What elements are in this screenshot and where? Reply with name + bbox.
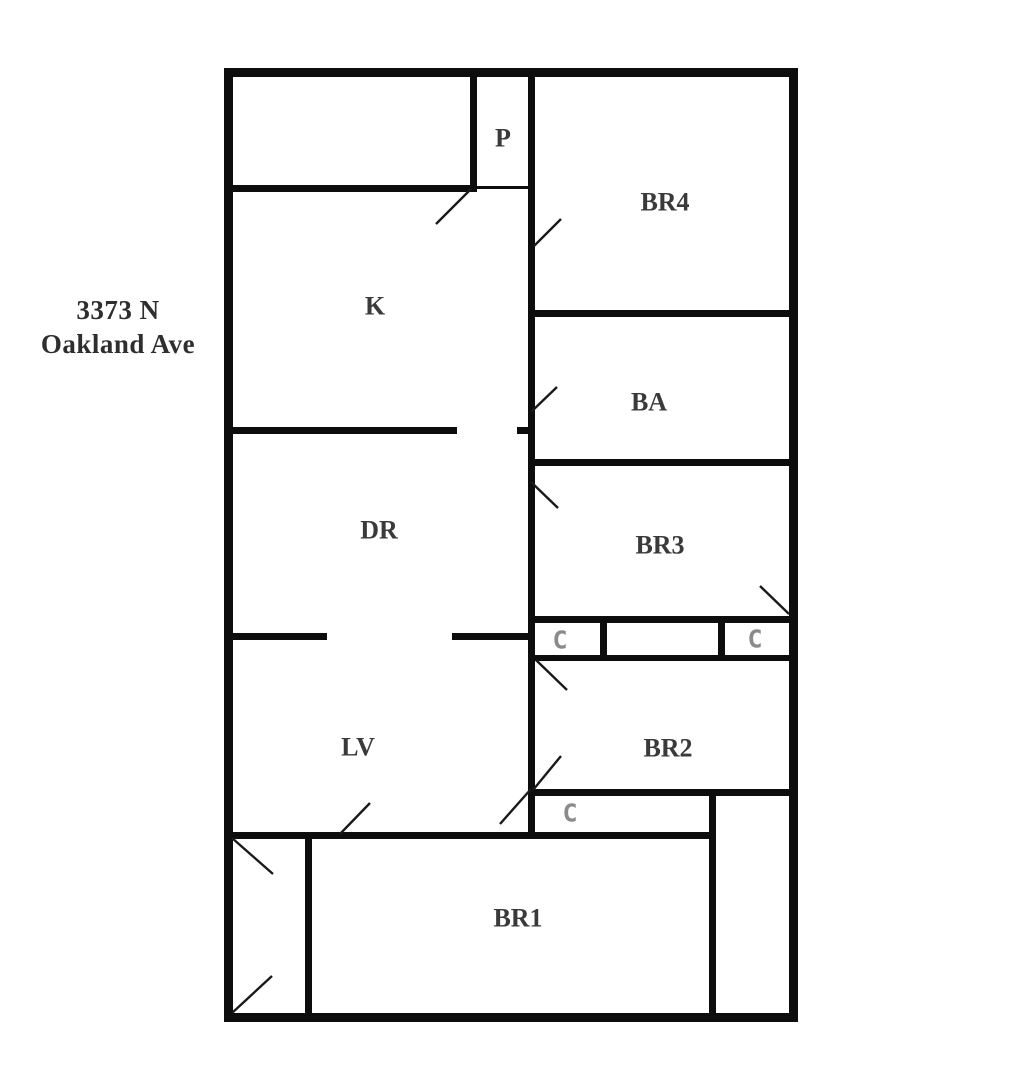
door-swing-line-6 (536, 660, 567, 690)
floorplan-diagram: PBR4KBADRBR3CCLVBR2CBR1 (0, 0, 1013, 1080)
door-swing-line-1 (436, 189, 471, 224)
door-swing-line-7 (533, 756, 561, 790)
door-swing-line-4 (531, 482, 558, 508)
closet-divider-2 (718, 623, 725, 655)
outer-wall-left (224, 68, 233, 1022)
door-swing-line-2 (534, 219, 561, 246)
outer-wall-bottom (224, 1013, 798, 1022)
vestibule-divider (305, 839, 312, 1013)
floorplan-page: 3373 N Oakland Ave PBR4KBADRBR3CCLVBR2CB… (0, 0, 1013, 1080)
room-label-lv: LV (341, 733, 375, 762)
door-swing-line-10 (232, 838, 273, 874)
pantry-left-wall (470, 77, 477, 192)
dr-lv-wall-left (233, 633, 327, 640)
br3-closetrow-wall (535, 616, 789, 623)
lv-br1-wall (233, 832, 716, 839)
topleft-room-bottom-wall (233, 185, 477, 192)
door-swing-line-11 (232, 976, 272, 1013)
dr-lv-wall-right (452, 633, 528, 640)
outer-wall-top (224, 68, 798, 77)
room-label-br4: BR4 (640, 188, 689, 217)
door-swing-line-9 (340, 803, 370, 834)
central-wall (528, 77, 535, 839)
ba-br3-wall (535, 459, 789, 466)
room-label-br3: BR3 (635, 531, 684, 560)
br2-bottom-wall (535, 789, 789, 796)
room-label-k: K (365, 292, 386, 321)
room-label-p: P (495, 124, 511, 153)
room-label-c: C (562, 799, 577, 828)
room-label-ba: BA (631, 388, 667, 417)
br1-right-wall (709, 789, 716, 1013)
br4-ba-wall (535, 310, 789, 317)
room-label-c: C (552, 626, 567, 655)
closet-divider-1 (600, 623, 607, 655)
closetrow-br2-wall (535, 655, 789, 661)
door-swing-line-5 (760, 586, 789, 614)
k-dr-wall-left (233, 427, 457, 434)
room-label-br2: BR2 (643, 734, 692, 763)
room-label-br1: BR1 (493, 904, 542, 933)
outer-wall-right (789, 68, 798, 1022)
pantry-bottom-wall (477, 186, 528, 189)
room-label-dr: DR (360, 516, 398, 545)
door-swing-line-8 (500, 789, 531, 824)
k-dr-wall-right-tick (517, 427, 528, 434)
room-label-c: C (747, 625, 762, 654)
